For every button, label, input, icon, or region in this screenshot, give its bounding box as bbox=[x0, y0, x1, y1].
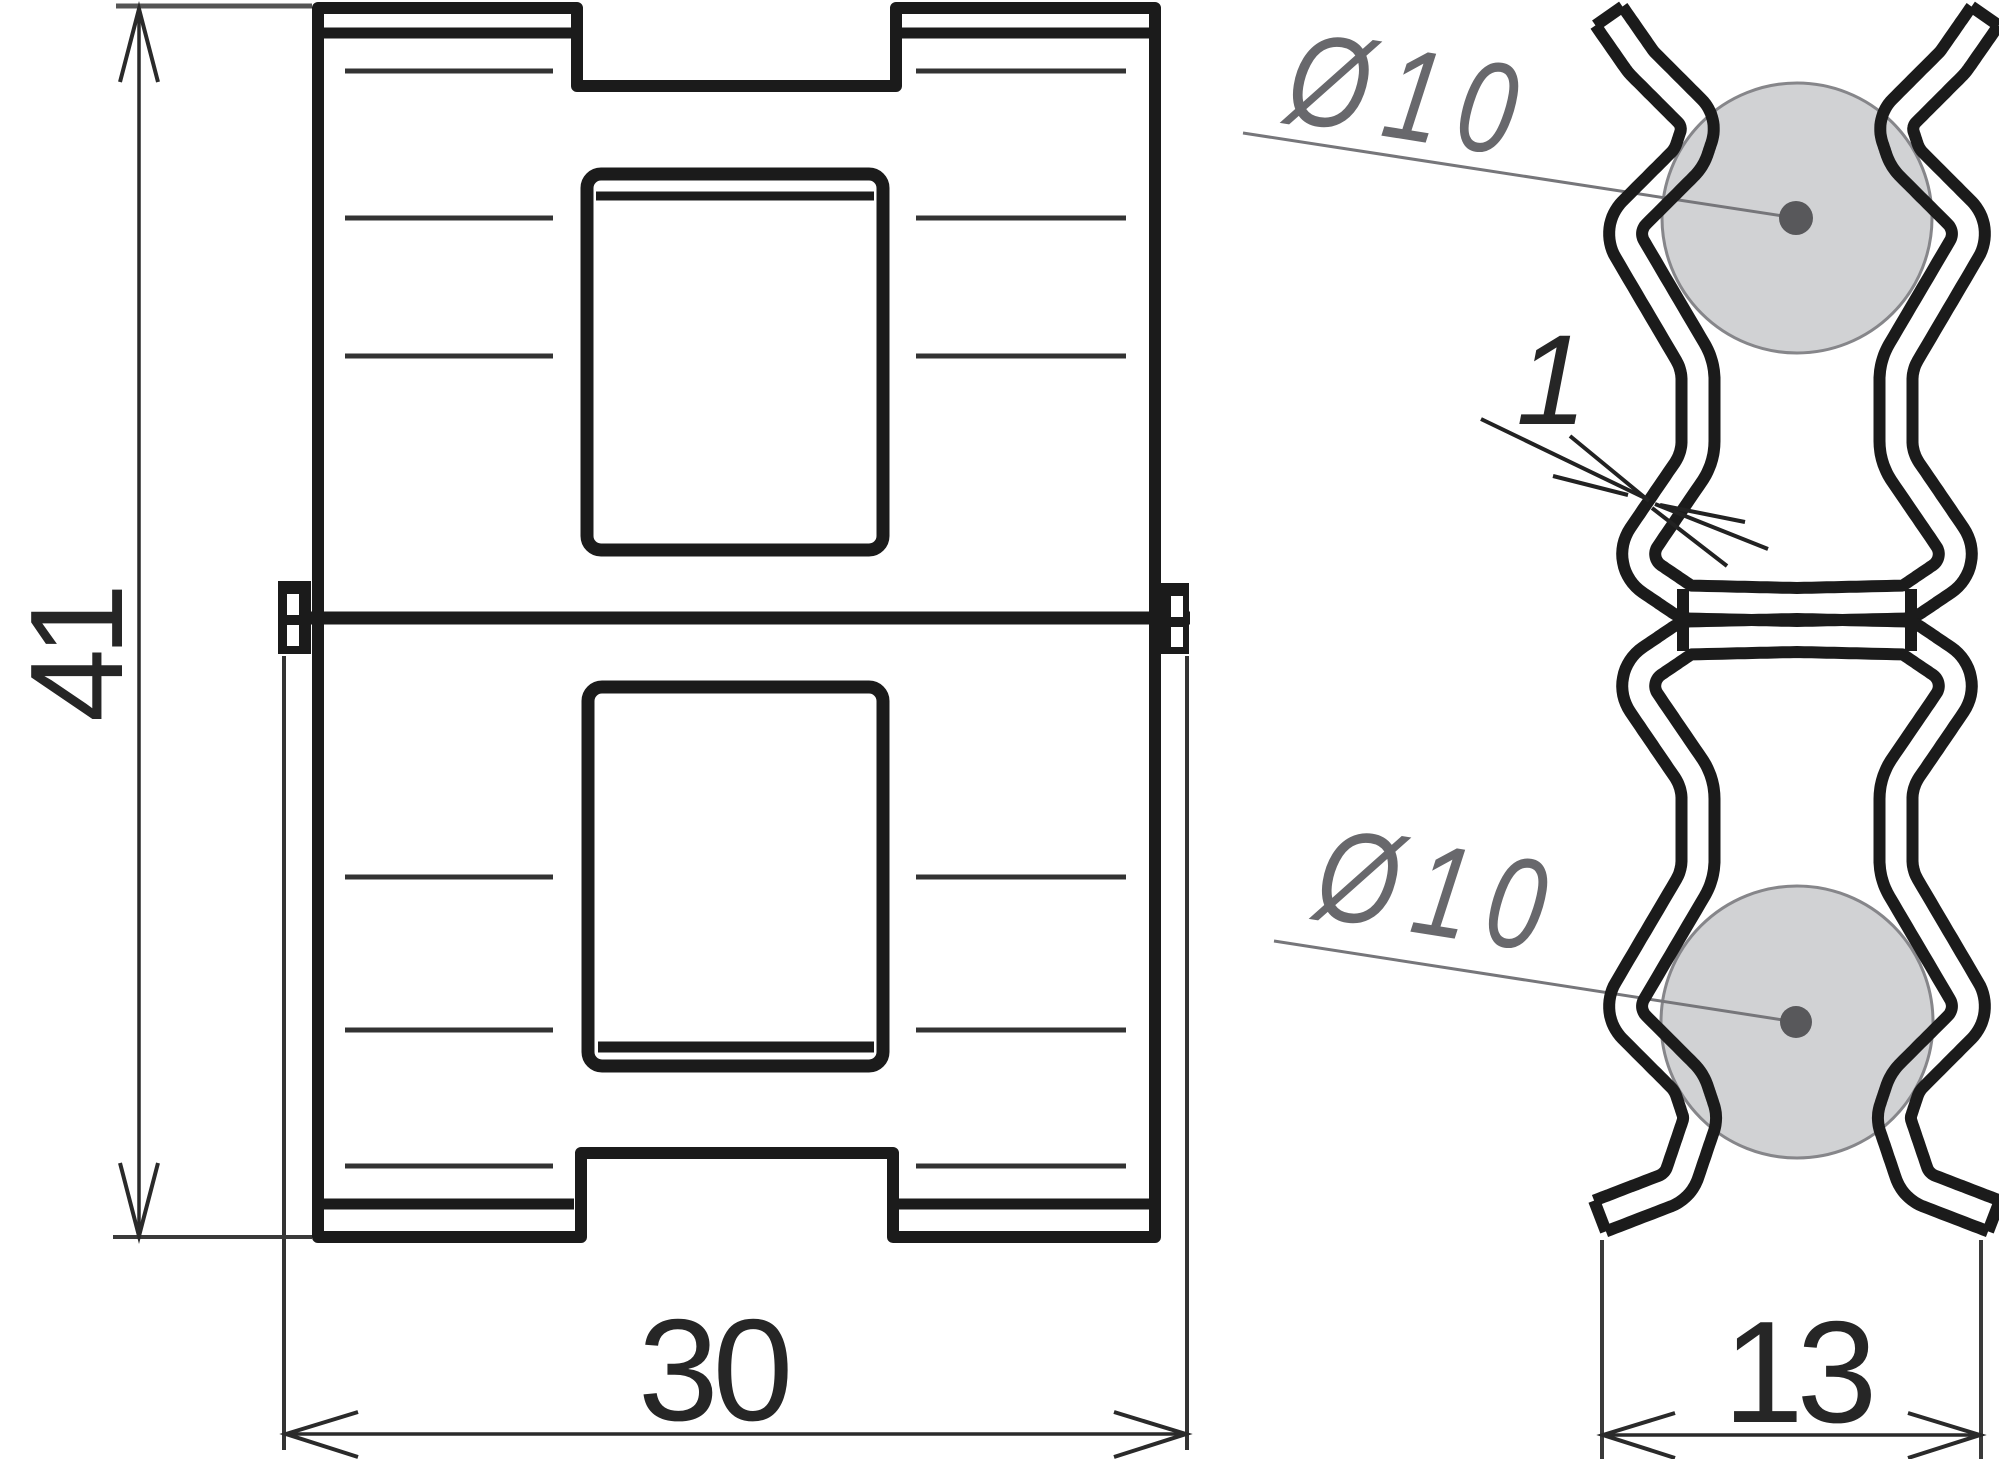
svg-text:30: 30 bbox=[638, 1289, 788, 1451]
svg-text:13: 13 bbox=[1723, 1291, 1872, 1453]
svg-text:41: 41 bbox=[3, 590, 150, 722]
svg-text:1: 1 bbox=[1516, 309, 1587, 452]
